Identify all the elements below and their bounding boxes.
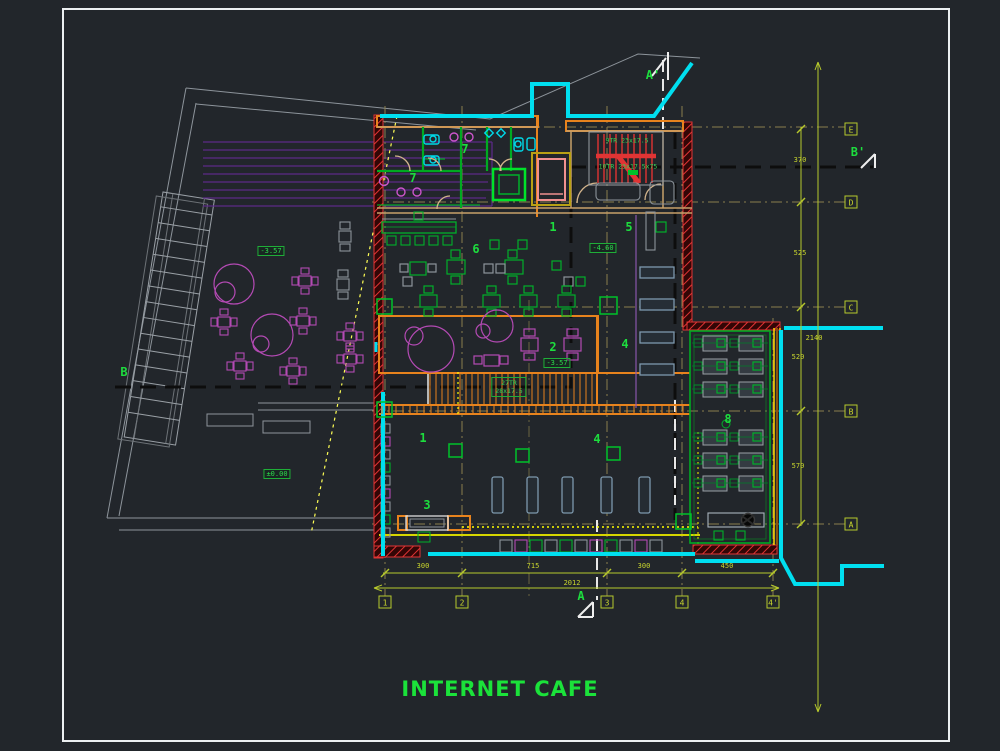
room2-furniture <box>405 310 581 372</box>
main-stair <box>428 374 592 404</box>
elevator-green <box>493 169 525 200</box>
bar-counter <box>382 212 456 245</box>
terrace-furniture <box>214 264 293 356</box>
long-tables <box>492 477 650 513</box>
window-squares <box>381 424 662 552</box>
drawing-title: INTERNET CAFE <box>0 677 1000 701</box>
elevator-pink <box>532 153 570 205</box>
orange-walls <box>377 116 690 530</box>
room3-counter <box>406 516 448 542</box>
green-partition-walls <box>377 127 511 208</box>
grid-lines <box>372 106 846 596</box>
computer-stations <box>692 336 768 540</box>
fire-stair <box>589 132 663 185</box>
hall-benches <box>640 267 674 375</box>
site-boundary <box>107 54 700 530</box>
floor-plan-canvas <box>0 0 1000 751</box>
stair-comb <box>382 406 683 414</box>
cafe-tables <box>400 240 585 316</box>
section-line-bb <box>115 154 875 387</box>
outdoor-staircase <box>118 191 215 448</box>
